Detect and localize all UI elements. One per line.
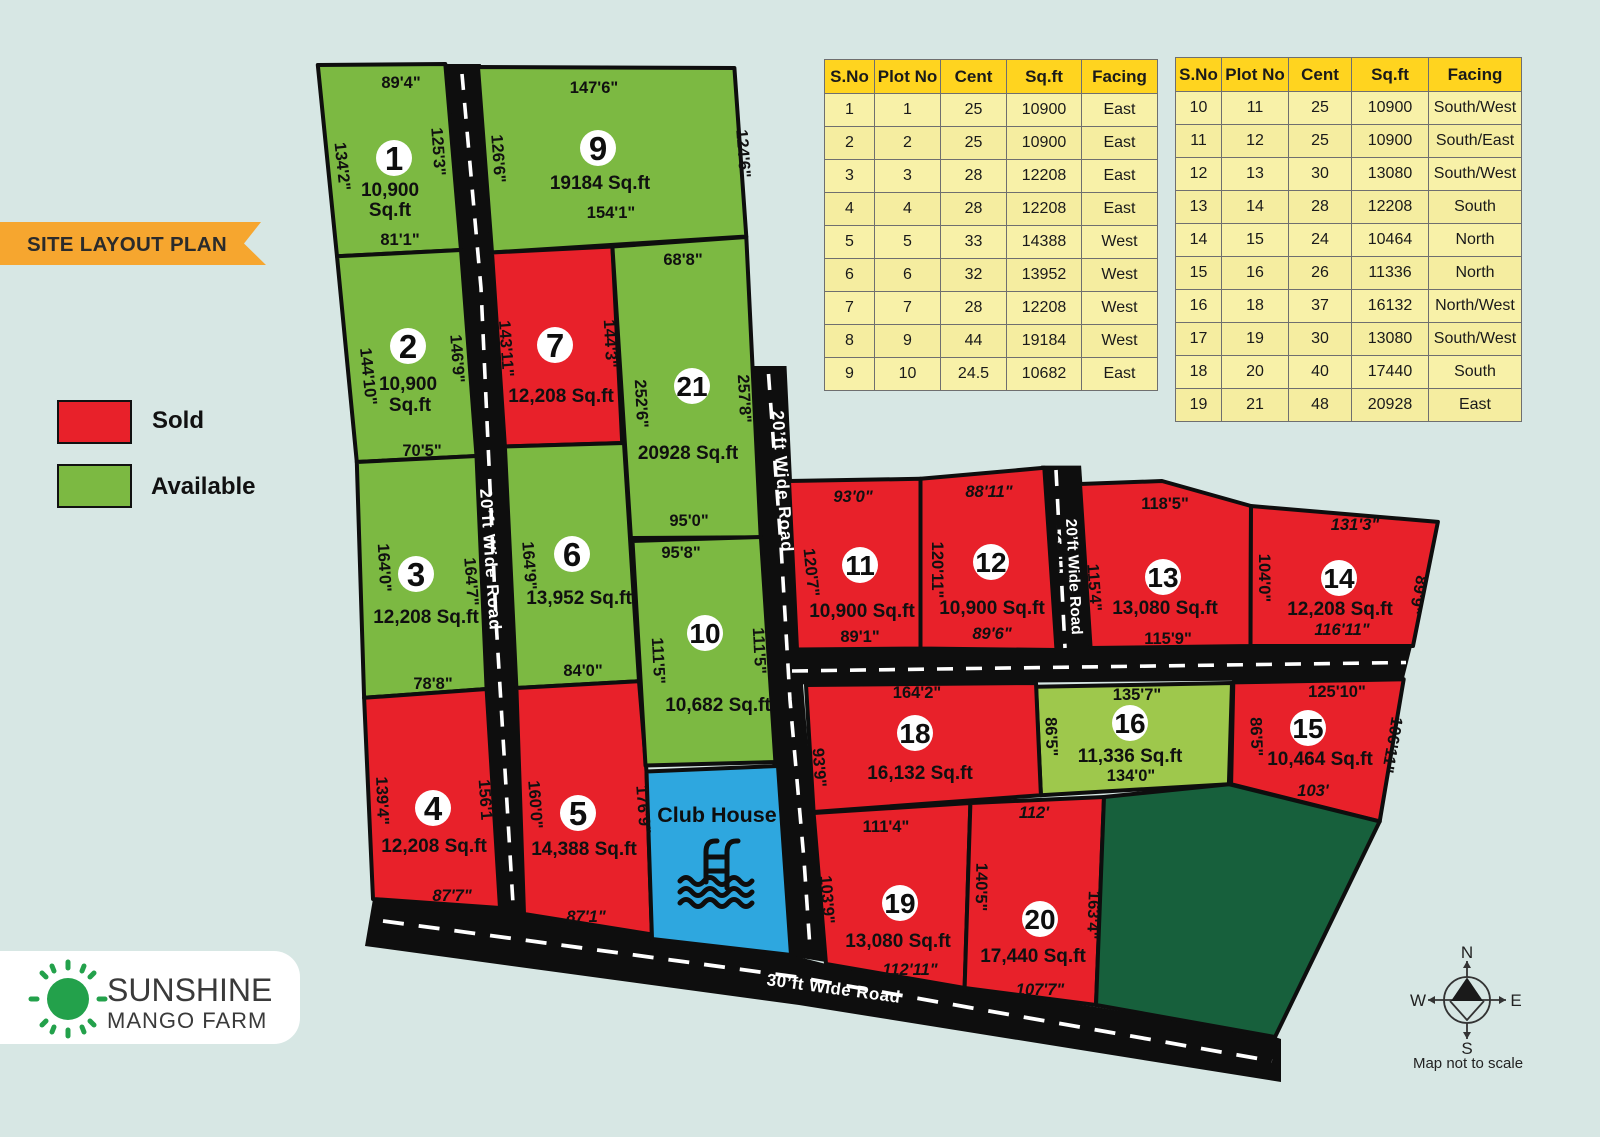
svg-text:3: 3 <box>407 556 425 593</box>
svg-text:89'4": 89'4" <box>381 74 420 92</box>
svg-text:N: N <box>1461 943 1473 962</box>
svg-text:116'11": 116'11" <box>1314 621 1369 639</box>
svg-text:1: 1 <box>385 140 403 177</box>
svg-text:87'7": 87'7" <box>432 887 471 905</box>
svg-text:103': 103' <box>1297 782 1330 800</box>
svg-text:12,208 Sq.ft: 12,208 Sq.ft <box>1287 599 1393 620</box>
svg-text:124'6": 124'6" <box>732 129 753 179</box>
svg-text:118'5": 118'5" <box>1141 495 1189 513</box>
svg-text:10,900: 10,900 <box>361 180 419 201</box>
svg-text:112'11": 112'11" <box>882 961 937 979</box>
svg-text:160'0": 160'0" <box>524 780 545 830</box>
svg-text:12,208 Sq.ft: 12,208 Sq.ft <box>508 386 614 407</box>
svg-text:70'5": 70'5" <box>402 442 441 460</box>
svg-text:89'1": 89'1" <box>840 628 879 646</box>
svg-text:10,900: 10,900 <box>379 374 437 395</box>
svg-text:20928 Sq.ft: 20928 Sq.ft <box>638 443 739 464</box>
svg-text:13,952 Sq.ft: 13,952 Sq.ft <box>526 588 632 609</box>
svg-text:163'4": 163'4" <box>1083 891 1103 940</box>
svg-text:Map not to scale: Map not to scale <box>1413 1055 1523 1072</box>
svg-text:111'5": 111'5" <box>749 627 769 675</box>
svg-text:6: 6 <box>563 536 581 573</box>
svg-text:21: 21 <box>676 371 707 402</box>
svg-text:81'1": 81'1" <box>380 231 419 249</box>
svg-text:164'7": 164'7" <box>460 557 481 607</box>
svg-text:164'2": 164'2" <box>893 684 941 702</box>
svg-text:86'5": 86'5" <box>1246 717 1265 757</box>
svg-text:SITE LAYOUT PLAN: SITE LAYOUT PLAN <box>27 233 227 256</box>
svg-text:111'4": 111'4" <box>863 818 910 836</box>
svg-text:252'6": 252'6" <box>631 379 652 428</box>
svg-text:19184 Sq.ft: 19184 Sq.ft <box>550 173 651 194</box>
svg-text:2: 2 <box>399 328 417 365</box>
svg-text:115'9": 115'9" <box>1144 630 1192 648</box>
svg-text:86'5": 86'5" <box>1041 717 1060 757</box>
svg-text:11,336 Sq.ft: 11,336 Sq.ft <box>1078 746 1183 767</box>
svg-text:16: 16 <box>1114 708 1145 739</box>
svg-text:W: W <box>1410 991 1426 1010</box>
svg-text:104'0": 104'0" <box>1255 554 1273 602</box>
svg-text:19: 19 <box>884 888 915 919</box>
svg-text:18: 18 <box>899 718 930 749</box>
svg-text:93'9": 93'9" <box>809 747 830 787</box>
svg-text:12,208 Sq.ft: 12,208 Sq.ft <box>381 836 487 857</box>
svg-text:107'7": 107'7" <box>1016 981 1065 999</box>
svg-text:10,900 Sq.ft: 10,900 Sq.ft <box>939 598 1045 619</box>
svg-text:11: 11 <box>845 550 875 581</box>
svg-text:20: 20 <box>1024 904 1055 935</box>
svg-text:17,440 Sq.ft: 17,440 Sq.ft <box>980 946 1086 967</box>
svg-text:131'3": 131'3" <box>1331 516 1380 534</box>
svg-text:115'4": 115'4" <box>1083 563 1104 612</box>
svg-text:68'8": 68'8" <box>663 251 702 269</box>
svg-text:10: 10 <box>689 618 720 649</box>
svg-text:Sq.ft: Sq.ft <box>369 200 412 221</box>
svg-text:125'10": 125'10" <box>1308 683 1366 701</box>
svg-text:146'9": 146'9" <box>446 334 467 384</box>
svg-text:126'6": 126'6" <box>487 134 508 184</box>
svg-text:164'9": 164'9" <box>518 541 539 591</box>
svg-text:257'8": 257'8" <box>734 374 755 423</box>
svg-text:E: E <box>1510 991 1521 1010</box>
svg-text:14: 14 <box>1323 563 1355 594</box>
svg-text:14,388 Sq.ft: 14,388 Sq.ft <box>531 839 637 860</box>
svg-text:120'11": 120'11" <box>928 542 946 599</box>
svg-text:Sq.ft: Sq.ft <box>389 395 432 416</box>
svg-text:13,080 Sq.ft: 13,080 Sq.ft <box>845 931 951 952</box>
svg-text:4: 4 <box>424 790 443 827</box>
svg-text:111'5": 111'5" <box>648 637 668 685</box>
svg-text:95'8": 95'8" <box>661 544 700 562</box>
svg-text:Club House: Club House <box>657 803 776 827</box>
svg-text:89'6": 89'6" <box>972 625 1011 643</box>
svg-text:140'5": 140'5" <box>972 863 991 912</box>
svg-text:144'3": 144'3" <box>600 319 621 368</box>
svg-text:135'7": 135'7" <box>1113 686 1161 704</box>
svg-text:15: 15 <box>1292 713 1323 744</box>
svg-text:12: 12 <box>975 547 1006 578</box>
svg-text:13,080 Sq.ft: 13,080 Sq.ft <box>1112 598 1218 619</box>
svg-text:9: 9 <box>589 130 607 167</box>
svg-text:164'0": 164'0" <box>374 543 395 592</box>
svg-text:10,900 Sq.ft: 10,900 Sq.ft <box>809 601 915 622</box>
svg-text:125'3": 125'3" <box>427 127 448 177</box>
svg-text:16,132 Sq.ft: 16,132 Sq.ft <box>867 763 973 784</box>
svg-text:5: 5 <box>569 795 587 832</box>
svg-text:112': 112' <box>1019 804 1050 822</box>
svg-text:88'11": 88'11" <box>965 483 1012 501</box>
svg-text:13: 13 <box>1147 562 1178 593</box>
svg-text:12,208 Sq.ft: 12,208 Sq.ft <box>373 607 479 628</box>
svg-text:87'1": 87'1" <box>566 908 605 926</box>
svg-text:139'4": 139'4" <box>372 776 392 825</box>
svg-text:93'0": 93'0" <box>833 488 872 506</box>
svg-text:176'9": 176'9" <box>632 785 653 835</box>
svg-text:147'6": 147'6" <box>570 79 618 97</box>
svg-text:156'1: 156'1 <box>475 779 496 821</box>
svg-text:134'0": 134'0" <box>1107 767 1155 785</box>
svg-text:154'1": 154'1" <box>587 204 635 222</box>
svg-text:84'0": 84'0" <box>563 662 602 680</box>
svg-text:10,682 Sq.ft: 10,682 Sq.ft <box>665 695 771 716</box>
svg-text:95'0": 95'0" <box>669 512 708 530</box>
svg-text:123'11": 123'11" <box>1052 523 1073 581</box>
svg-text:10,464 Sq.ft: 10,464 Sq.ft <box>1267 749 1373 770</box>
svg-text:103'9": 103'9" <box>816 875 837 925</box>
svg-text:7: 7 <box>546 327 564 364</box>
svg-text:78'8": 78'8" <box>413 675 452 693</box>
